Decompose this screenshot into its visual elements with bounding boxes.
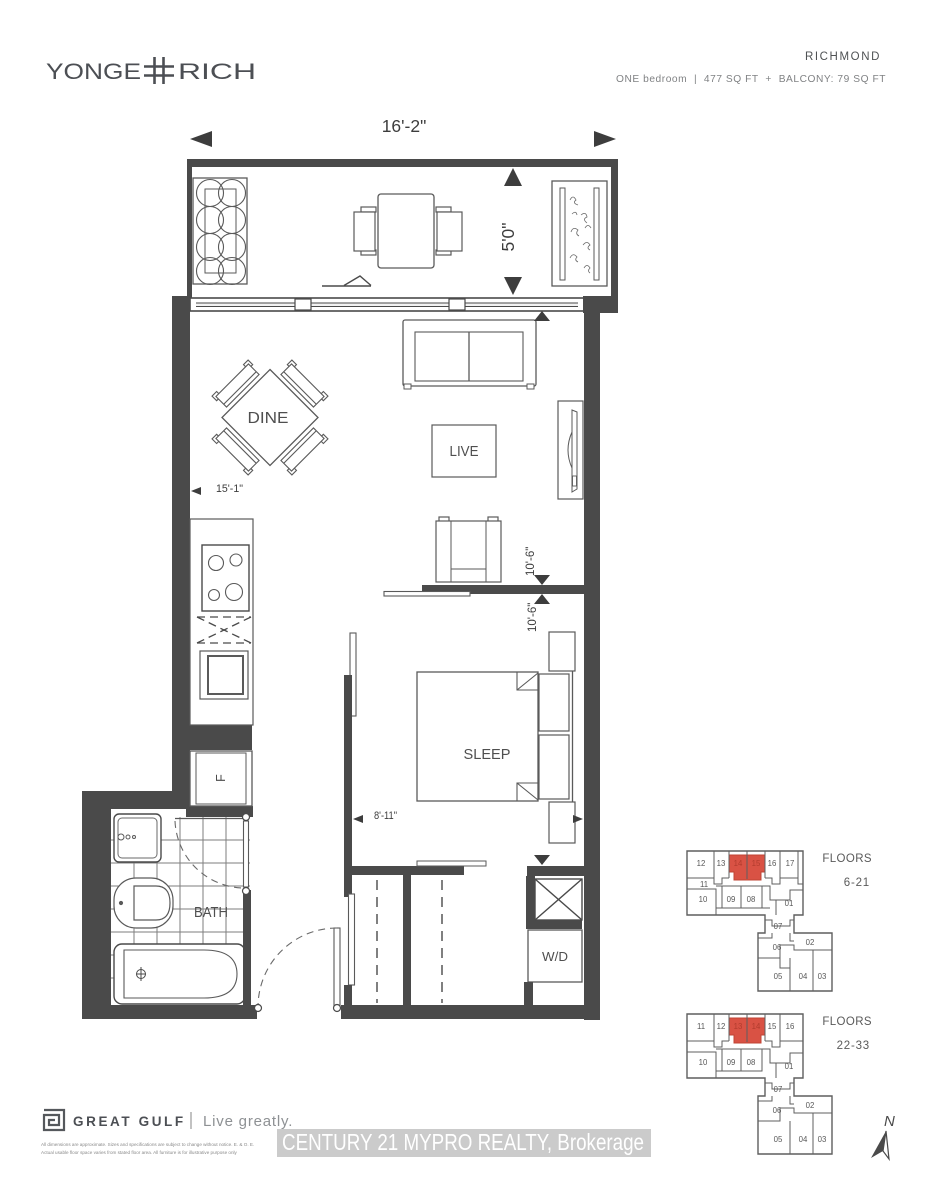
svg-text:10: 10 <box>699 895 708 904</box>
svg-text:W/D: W/D <box>542 949 568 964</box>
svg-text:FLOORS: FLOORS <box>822 853 872 865</box>
svg-text:16: 16 <box>768 859 777 868</box>
svg-text:11: 11 <box>697 1022 705 1031</box>
svg-text:02: 02 <box>806 1101 815 1110</box>
svg-text:10: 10 <box>699 1058 708 1067</box>
svg-text:12: 12 <box>697 859 706 868</box>
svg-text:LIVE: LIVE <box>450 444 479 460</box>
svg-text:ONE bedroom | 477 SQ FT +: ONE bedroom | 477 SQ FT + BALCONY: 79 SQ… <box>616 74 886 85</box>
svg-text:04: 04 <box>799 972 808 981</box>
svg-text:04: 04 <box>799 1135 808 1144</box>
svg-text:14: 14 <box>752 1022 761 1031</box>
svg-text:06: 06 <box>773 1106 782 1115</box>
svg-text:14: 14 <box>734 859 743 868</box>
svg-text:YONGE: YONGE <box>46 59 141 84</box>
svg-text:10'-6": 10'-6" <box>525 547 537 576</box>
svg-text:F: F <box>214 774 228 782</box>
svg-text:01: 01 <box>785 1062 794 1071</box>
svg-text:Actual usable floor space vari: Actual usable floor space varies from st… <box>41 1150 238 1155</box>
svg-text:16'-2": 16'-2" <box>382 116 427 136</box>
svg-text:03: 03 <box>818 1135 827 1144</box>
svg-text:22-33: 22-33 <box>837 1040 870 1052</box>
svg-text:13: 13 <box>717 859 726 868</box>
svg-text:09: 09 <box>727 895 736 904</box>
svg-text:BATH: BATH <box>194 904 228 921</box>
svg-text:02: 02 <box>806 938 815 947</box>
svg-text:03: 03 <box>818 972 827 981</box>
svg-text:11: 11 <box>700 880 708 889</box>
svg-text:13: 13 <box>734 1022 743 1031</box>
svg-text:16: 16 <box>786 1022 795 1031</box>
svg-text:07: 07 <box>774 1085 783 1094</box>
svg-text:12: 12 <box>717 1022 726 1031</box>
svg-text:15'-1": 15'-1" <box>216 483 243 495</box>
svg-text:17: 17 <box>786 859 795 868</box>
svg-text:6-21: 6-21 <box>844 877 870 889</box>
svg-text:Live greatly.: Live greatly. <box>203 1113 293 1130</box>
svg-text:15: 15 <box>752 859 761 868</box>
svg-text:RICHMOND: RICHMOND <box>805 51 881 63</box>
svg-text:15: 15 <box>768 1022 777 1031</box>
svg-text:07: 07 <box>774 922 783 931</box>
svg-text:06: 06 <box>773 943 782 952</box>
svg-text:5'0": 5'0" <box>498 222 518 251</box>
svg-text:09: 09 <box>727 1058 736 1067</box>
svg-text:01: 01 <box>785 899 794 908</box>
svg-text:N: N <box>884 1113 895 1130</box>
svg-text:RICH: RICH <box>178 59 256 84</box>
svg-text:08: 08 <box>747 895 756 904</box>
svg-text:CENTURY 21 MYPRO REALTY, Broke: CENTURY 21 MYPRO REALTY, Brokerage <box>282 1129 644 1155</box>
svg-text:All dimensions are approximate: All dimensions are approximate. Sizes an… <box>41 1142 254 1147</box>
svg-text:08: 08 <box>747 1058 756 1067</box>
svg-text:8'-11": 8'-11" <box>374 810 397 822</box>
svg-text:10'-6": 10'-6" <box>527 603 539 632</box>
svg-text:DINE: DINE <box>248 410 289 427</box>
svg-text:GREAT GULF: GREAT GULF <box>73 1114 186 1129</box>
svg-text:SLEEP: SLEEP <box>464 746 511 763</box>
svg-text:FLOORS: FLOORS <box>822 1016 872 1028</box>
svg-text:05: 05 <box>774 1135 783 1144</box>
svg-text:05: 05 <box>774 972 783 981</box>
